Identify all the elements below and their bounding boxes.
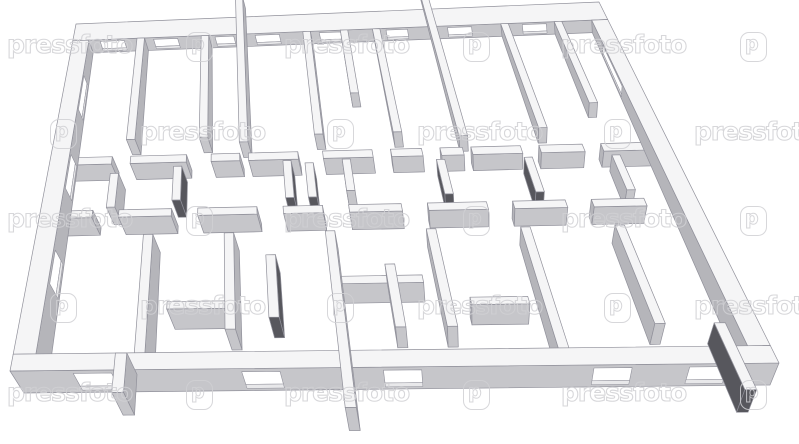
wall-top-face (211, 153, 240, 161)
wall-front-face (514, 208, 568, 227)
wall-front-face (592, 206, 647, 225)
window-sill (217, 43, 236, 46)
wall-top-face (427, 202, 488, 211)
wall-top-face (199, 35, 209, 137)
wall-top-face (283, 205, 323, 213)
window-opening (386, 29, 409, 37)
wall-front-face (588, 103, 597, 118)
window-sill (385, 383, 423, 387)
window-sill (246, 384, 285, 388)
wall-top-face (501, 23, 548, 127)
wall-front-face (393, 132, 403, 148)
wall-top-face (172, 166, 182, 200)
wall-top-face (167, 301, 225, 309)
window-sill (591, 380, 629, 384)
wall-top-face (372, 29, 401, 132)
wall-top-face (340, 275, 423, 284)
window-opening (154, 38, 180, 46)
wall-front-face (396, 327, 408, 348)
wall-top-face (349, 204, 403, 213)
wall-front-face (167, 308, 232, 329)
wall-top-face (391, 148, 424, 156)
wall-front-face (429, 209, 489, 228)
wall-top-face (513, 200, 568, 209)
wall-top-face (118, 209, 171, 218)
wall-top-face (323, 150, 374, 159)
wall-front-face (350, 93, 361, 108)
window-opening (383, 370, 422, 383)
wall-west-face (501, 24, 539, 143)
window-opening (242, 371, 284, 384)
window-opening (255, 34, 281, 42)
wall-top-face (440, 147, 464, 155)
wall-front-face (118, 216, 178, 235)
window-opening (448, 27, 473, 35)
wall-top-face (591, 198, 647, 207)
wall-top-face (471, 146, 523, 155)
window-opening (592, 368, 632, 381)
wall-top-face (198, 207, 258, 216)
wall-front-face (472, 304, 530, 325)
window-opening (73, 373, 118, 386)
wall-top-face (248, 152, 298, 161)
window-opening (215, 36, 236, 44)
wall-front-face (198, 214, 262, 233)
window-sill (685, 379, 724, 383)
window-opening (100, 41, 126, 49)
window-opening (319, 32, 342, 40)
wall-front-face (473, 153, 523, 170)
stock-photo-canvas: pressfotopressfotopressfotoppppressfotop… (0, 0, 799, 444)
wall-top-face (470, 296, 530, 304)
wall-front-face (447, 326, 458, 347)
wall-front-face (211, 161, 244, 178)
wall-front-face (392, 156, 425, 173)
wall-top-face (305, 163, 317, 197)
wall-top-face (224, 233, 235, 329)
wall-front-face (284, 213, 327, 231)
wall-front-face (541, 152, 585, 169)
wall-front-face (341, 282, 425, 303)
wall-top-face (539, 144, 585, 153)
floorplan-3d-rendering (0, 0, 799, 444)
wall-west-face (554, 22, 589, 118)
wall-top-face (130, 155, 186, 164)
window-opening (522, 24, 547, 32)
wall-front-face (538, 128, 547, 144)
wall-front-face (350, 211, 405, 230)
